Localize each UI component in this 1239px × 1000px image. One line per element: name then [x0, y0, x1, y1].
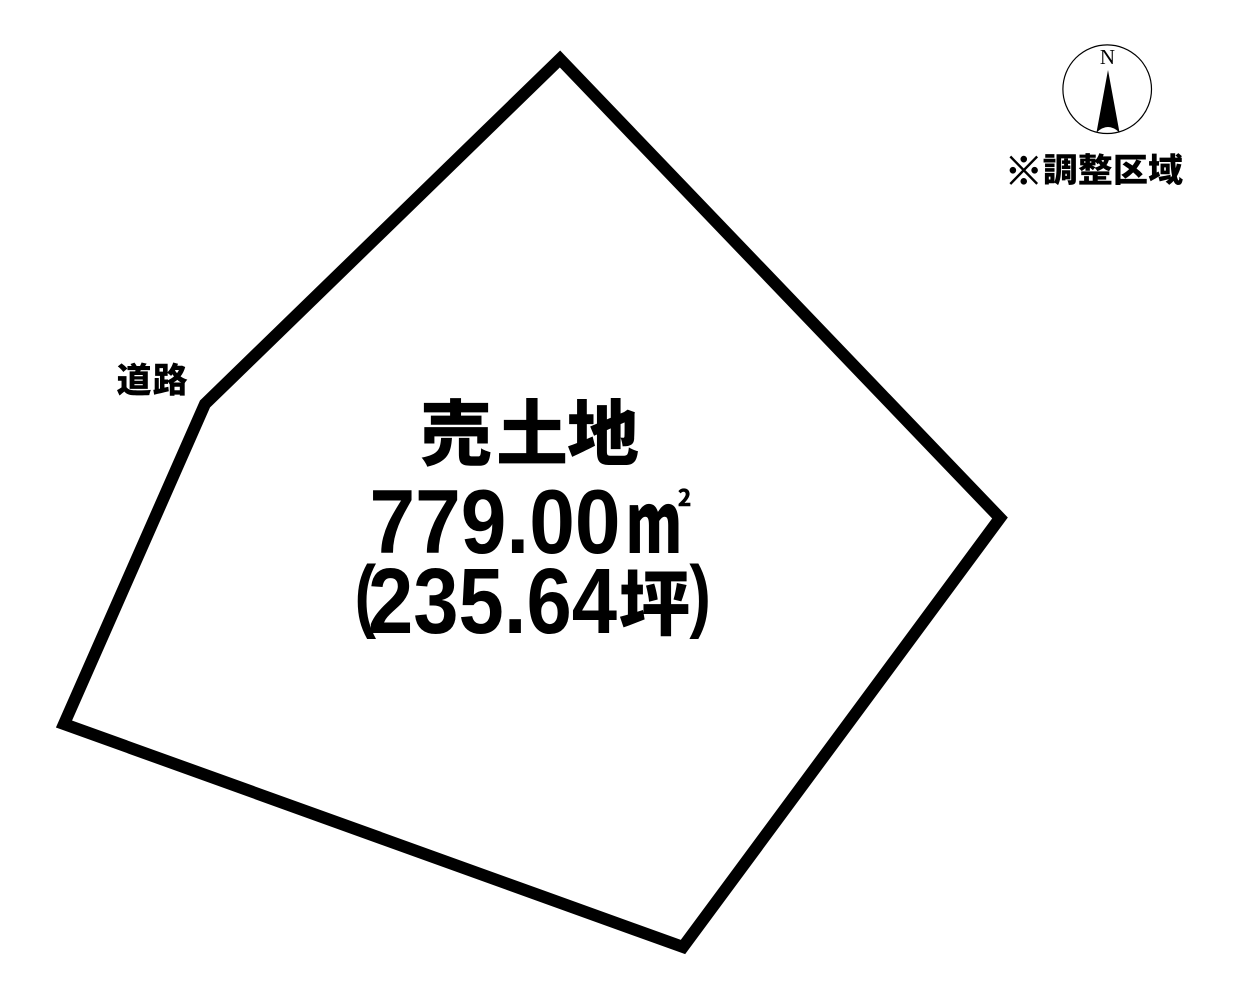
svg-text:): ) — [689, 549, 711, 640]
svg-text:N: N — [1100, 45, 1115, 69]
svg-text:235.64: 235.64 — [368, 549, 617, 653]
